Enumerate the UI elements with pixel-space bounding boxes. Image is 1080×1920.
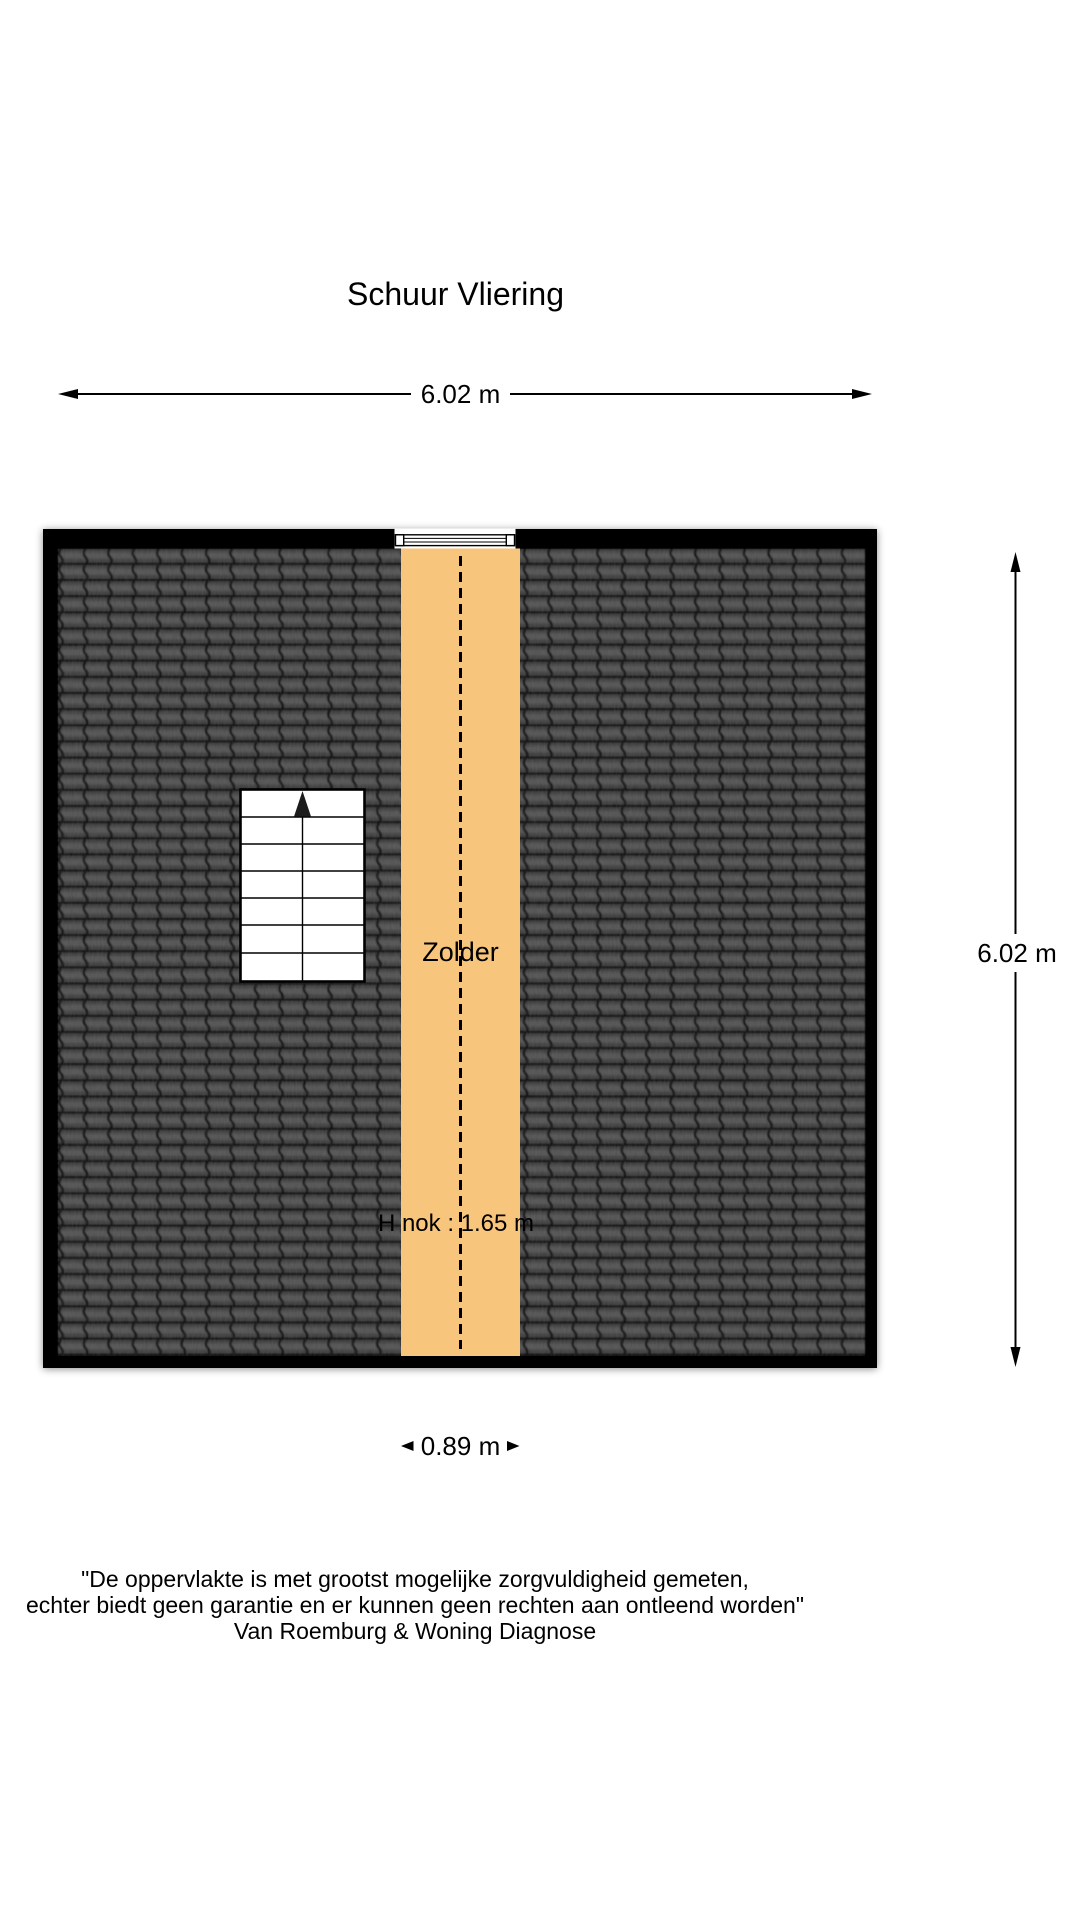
svg-text:6.02 m: 6.02 m (421, 379, 501, 409)
svg-text:Zolder: Zolder (422, 937, 499, 967)
svg-text:Van Roemburg & Woning Diagnose: Van Roemburg & Woning Diagnose (234, 1618, 596, 1644)
svg-text:echter biedt geen garantie en: echter biedt geen garantie en er kunnen … (26, 1592, 804, 1618)
svg-text:H nok : 1.65 m: H nok : 1.65 m (378, 1210, 534, 1237)
svg-text:"De oppervlakte is met grootst: "De oppervlakte is met grootst mogelijke… (81, 1566, 749, 1592)
svg-text:Schuur Vliering: Schuur Vliering (347, 276, 564, 312)
svg-text:6.02 m: 6.02 m (977, 938, 1057, 968)
svg-text:0.89 m: 0.89 m (421, 1431, 501, 1461)
